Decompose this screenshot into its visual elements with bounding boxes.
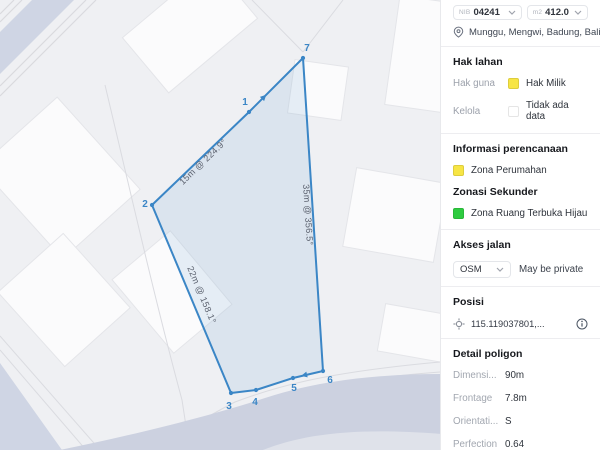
kelola-value: Tidak ada data [526, 100, 588, 122]
zona-hijau-label: Zona Ruang Terbuka Hijau [471, 208, 587, 219]
chevron-down-icon [574, 10, 582, 15]
zonasi-sekunder-title: Zonasi Sekunder [453, 186, 588, 198]
posisi-row: 115.119037801,... [453, 318, 588, 330]
dimensi-label: Dimensi... [453, 370, 505, 381]
chevron-down-icon [496, 267, 504, 272]
dimensi-value: 90m [505, 370, 524, 381]
kelola-row: Kelola Tidak ada data [453, 100, 588, 122]
private-note: May be private [519, 264, 583, 275]
divider [441, 46, 600, 47]
posisi-title: Posisi [453, 296, 588, 308]
parcel-id-select[interactable]: NIB 04241 [453, 5, 522, 20]
area-unit-label: m2 [533, 9, 542, 16]
map-view[interactable]: 7123456 15m @ 224.9°35m @ 356.5°22m @ 15… [0, 0, 440, 450]
perencanaan-title: Informasi perencanaan [453, 143, 588, 155]
parcel-id-label: NIB [459, 9, 470, 16]
area-select[interactable]: m2 412.0 [527, 5, 588, 20]
map-canvas: 7123456 15m @ 224.9°35m @ 356.5°22m @ 15… [0, 0, 440, 450]
crosshair-icon [453, 318, 465, 330]
divider [441, 338, 600, 339]
vertex-label-1: 1 [242, 97, 248, 108]
area-value: 412.0 [545, 7, 569, 18]
divider [441, 286, 600, 287]
hak-guna-value: Hak Milik [526, 78, 566, 89]
vertex-label-6: 6 [327, 375, 333, 386]
zona-hijau-row: Zona Ruang Terbuka Hijau [453, 208, 588, 219]
frontage-value: 7.8m [505, 393, 527, 404]
kelola-label: Kelola [453, 106, 508, 117]
hak-lahan-title: Hak lahan [453, 56, 588, 68]
divider [441, 229, 600, 230]
orientation-value: S [505, 416, 512, 427]
vertex-5[interactable] [291, 376, 295, 380]
vertex-7[interactable] [301, 56, 305, 60]
location-pin-icon [453, 26, 464, 38]
zona-perumahan-row: Zona Perumahan [453, 165, 588, 176]
info-icon[interactable] [576, 318, 588, 330]
top-controls: NIB 04241 m2 412.0 [453, 5, 588, 20]
hak-guna-label: Hak guna [453, 78, 508, 89]
location-text: Munggu, Mengwi, Badung, Bali [469, 27, 600, 38]
dimensi-row: Dimensi... 90m [453, 370, 588, 381]
vertex-3[interactable] [229, 391, 233, 395]
orientation-row: Orientati... S [453, 416, 588, 427]
akses-jalan-title: Akses jalan [453, 239, 588, 251]
land-parcel-app: 7123456 15m @ 224.9°35m @ 356.5°22m @ 15… [0, 0, 600, 450]
location-row[interactable]: Munggu, Mengwi, Badung, Bali [453, 26, 588, 38]
frontage-row: Frontage 7.8m [453, 393, 588, 404]
vertex-4[interactable] [254, 388, 258, 392]
parcel-id-value: 04241 [473, 7, 499, 18]
detail-poligon-title: Detail poligon [453, 348, 588, 360]
zona-perumahan-label: Zona Perumahan [471, 165, 547, 176]
vertex-2[interactable] [150, 203, 154, 207]
vertex-label-5: 5 [291, 383, 297, 394]
hak-guna-row: Hak guna Hak Milik [453, 78, 588, 89]
divider [441, 133, 600, 134]
no-data-swatch [508, 106, 519, 117]
vertex-label-3: 3 [226, 401, 232, 412]
hak-milik-swatch [508, 78, 519, 89]
coordinate-text: 115.119037801,... [471, 319, 545, 329]
akses-jalan-row: OSM May be private [453, 261, 588, 278]
frontage-label: Frontage [453, 393, 505, 404]
road-source-select[interactable]: OSM [453, 261, 511, 278]
vertex-6[interactable] [321, 369, 325, 373]
vertex-1[interactable] [247, 110, 251, 114]
road-source-value: OSM [460, 264, 482, 275]
perfection-label: Perfection [453, 439, 505, 450]
perfection-value: 0.64 [505, 439, 524, 450]
vertex-label-4: 4 [252, 397, 258, 408]
vertex-label-2: 2 [142, 199, 148, 210]
vertex-label-7: 7 [304, 43, 310, 54]
zona-hijau-swatch [453, 208, 464, 219]
zona-perumahan-swatch [453, 165, 464, 176]
sidebar: NIB 04241 m2 412.0 Munggu, Mengwi, Badun… [440, 0, 600, 450]
orientation-label: Orientati... [453, 416, 505, 427]
chevron-down-icon [508, 10, 516, 15]
perfection-row: Perfection 0.64 [453, 439, 588, 450]
